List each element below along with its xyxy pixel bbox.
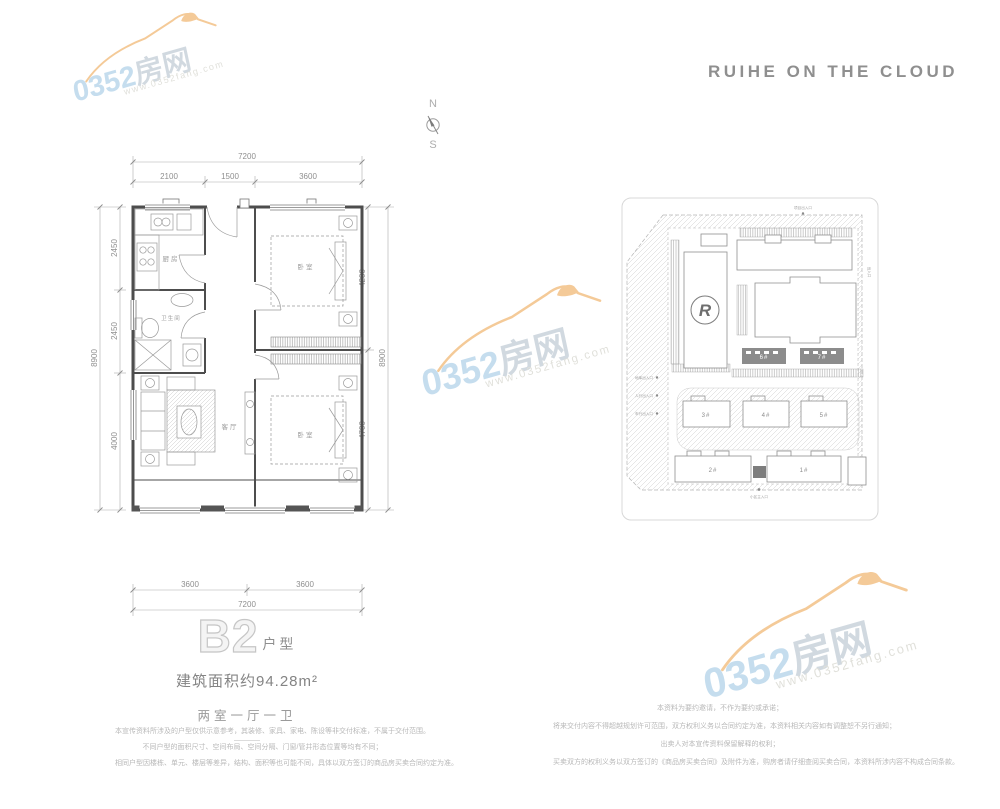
compass-south-label: S <box>424 139 442 152</box>
watermark-url: www.0352fang.com <box>484 342 613 391</box>
unit-room-count: 两室一厅一卫 <box>135 705 359 724</box>
svg-text:7#: 7# <box>818 355 827 361</box>
svg-text:4000: 4000 <box>110 432 119 450</box>
svg-text:8900: 8900 <box>90 349 99 367</box>
floorplan-page: RUIHE ON THE CLOUD N S <box>0 0 1000 809</box>
svg-text:1500: 1500 <box>221 172 239 181</box>
room-label-living: 客厅 <box>222 422 239 431</box>
site-logo-letter: R <box>699 301 712 320</box>
svg-text:2450: 2450 <box>110 239 119 257</box>
disclaimer-left: 本宣传资料所涉及的户型仅供示意参考，其装修、家具、家电、陈设等非交付标准，不属于… <box>115 724 410 772</box>
watermark-url: www.0352fang.com <box>774 637 920 692</box>
svg-text:8900: 8900 <box>378 349 387 367</box>
compass-needle-icon <box>425 113 441 137</box>
svg-text:3600: 3600 <box>299 172 317 181</box>
disclaimer-line: 相同户型因楼栋、单元、楼层等差异，结构、面积等也可能不同，具体以双方签订的商品房… <box>115 756 410 772</box>
doors <box>179 207 281 379</box>
room-label-bedroom-bottom: 卧室 <box>298 430 315 439</box>
brand-logo-text: RUIHE ON THE CLOUD <box>708 62 958 82</box>
svg-text:4#: 4# <box>762 413 771 419</box>
svg-text:2100: 2100 <box>160 172 178 181</box>
unit-code-row: B2 户型 <box>135 616 359 656</box>
bedroom-top-furniture <box>271 216 357 326</box>
kitchen-fixtures <box>135 209 203 290</box>
svg-text:项目出入口: 项目出入口 <box>794 205 812 210</box>
room-label-bathroom: 卫生间 <box>161 314 181 322</box>
pier-box <box>240 199 249 208</box>
watermark-text: 0352房网 <box>68 35 194 110</box>
unit-code: B2 <box>198 616 259 656</box>
compass: N S <box>424 98 442 152</box>
svg-text:出入口: 出入口 <box>867 267 872 278</box>
watermark: 0352房网 www.0352fang.com <box>688 560 954 722</box>
unit-area: 建筑面积约94.28m² <box>135 670 359 691</box>
disclaimer-line: 本资料为要约邀请，不作为要约或承诺； <box>553 700 887 718</box>
svg-text:6#: 6# <box>760 355 769 361</box>
disclaimer-line: 出卖人对本宣传资料保留解释的权利； <box>553 736 887 754</box>
disclaimer-line: 将来交付内容不得超越规划许可范围，双方权利义务以合同约定为准，本资料相关内容如有… <box>553 718 887 736</box>
floorplan-drawing: 7200 2100 1500 3600 8900 2450 2450 4000 … <box>85 148 415 623</box>
svg-text:地库出入口: 地库出入口 <box>635 375 653 380</box>
watermark-text: 0352房网 <box>416 313 574 406</box>
room-label-kitchen: 厨房 <box>163 254 180 263</box>
unit-info: B2 户型 建筑面积约94.28m² 两室一厅一卫 <box>135 616 359 741</box>
car-swoosh-icon <box>700 556 925 678</box>
svg-text:2#: 2# <box>709 468 718 474</box>
car-swoosh-icon <box>419 271 617 378</box>
living-furniture <box>141 376 255 466</box>
svg-text:3#: 3# <box>702 413 711 419</box>
svg-text:7200: 7200 <box>238 152 256 161</box>
svg-text:车行出入口: 车行出入口 <box>635 411 653 416</box>
svg-text:2450: 2450 <box>110 322 119 340</box>
room-label-bedroom-top: 卧室 <box>298 262 315 271</box>
bedroom-bottom-furniture <box>271 376 357 482</box>
svg-text:7200: 7200 <box>238 600 256 609</box>
disclaimer-line: 不同户型的面积尺寸、空间布局、空间分隔、门窗/管井形态位置等均有不同； <box>115 740 410 756</box>
svg-text:人行出入口: 人行出入口 <box>635 393 653 398</box>
unit-code-suffix: 户型 <box>262 634 296 654</box>
watermark: 0352房网 www.0352fang.com <box>62 4 249 118</box>
site-dark-small-building <box>753 466 766 478</box>
svg-text:1#: 1# <box>800 468 809 474</box>
disclaimer-line: 本宣传资料所涉及的户型仅供示意参考，其装修、家具、家电、陈设等非交付标准，不属于… <box>115 724 410 740</box>
svg-text:5#: 5# <box>820 413 829 419</box>
site-logo: R <box>691 296 719 324</box>
siteplan-drawing: R 3# 4# 5# 2# 1# 6# 7# 项目出入口 地库出入口 人行出入口… <box>615 192 883 524</box>
compass-north-label: N <box>424 98 442 111</box>
watermark-text: 0352房网 <box>697 605 876 711</box>
bathroom-fixtures <box>135 294 201 371</box>
watermark: 0352房网 www.0352fang.com <box>408 274 642 416</box>
dimension-lines <box>94 156 394 616</box>
dimension-labels: 7200 2100 1500 3600 8900 2450 2450 4000 … <box>90 152 387 609</box>
svg-text:小区主入口: 小区主入口 <box>750 494 768 499</box>
disclaimer-line: 买卖双方的权利义务以双方签订的《商品房买卖合同》及附件为准，购房者请仔细查阅买卖… <box>553 754 887 772</box>
watermark-url: www.0352fang.com <box>123 58 226 97</box>
car-swoosh-icon <box>71 1 230 87</box>
svg-text:3600: 3600 <box>296 580 314 589</box>
disclaimer-right: 本资料为要约邀请，不作为要约或承诺； 将来交付内容不得超越规划许可范围，双方权利… <box>553 700 887 772</box>
svg-text:3600: 3600 <box>181 580 199 589</box>
